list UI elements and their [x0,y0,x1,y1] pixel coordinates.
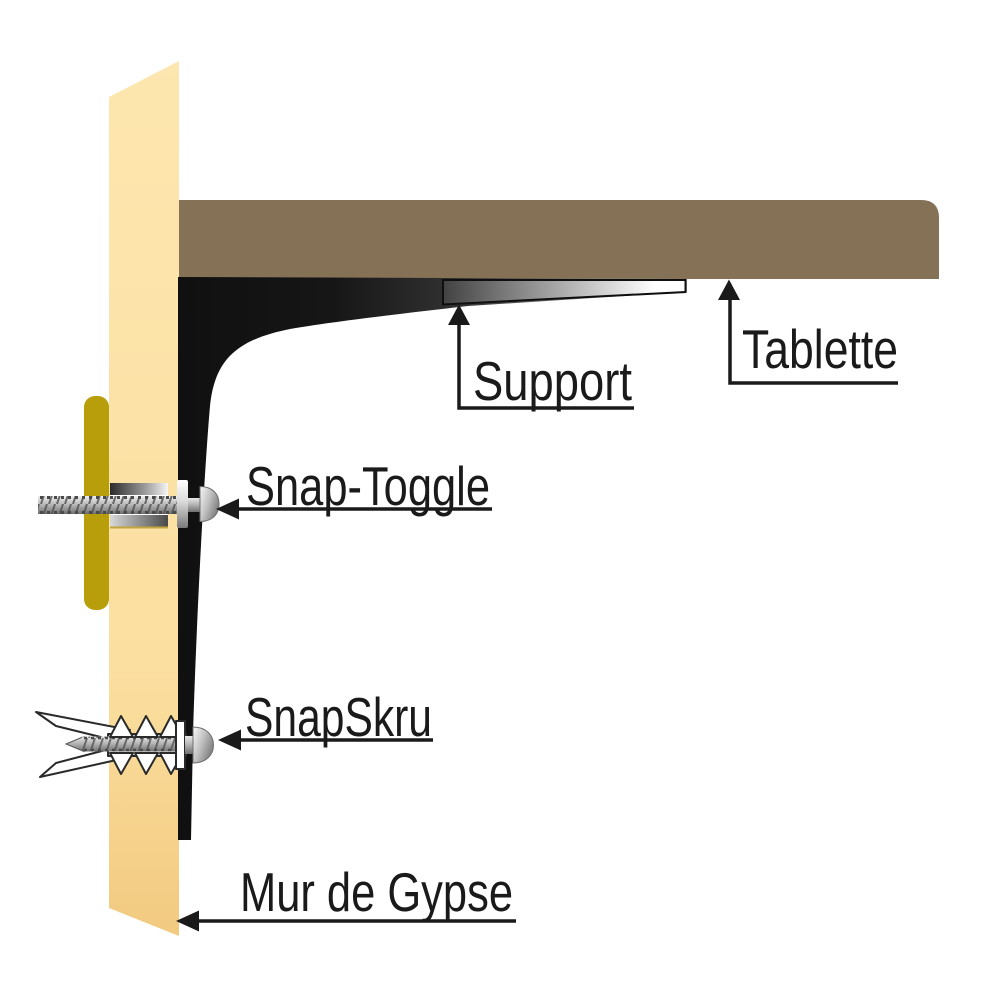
toggle-washer [177,480,188,528]
label-tablette: Tablette [742,318,898,380]
toggle-channel-bottom-flange [110,515,168,527]
rod-threads [38,496,180,514]
toggle-bolt-rod [38,496,180,514]
anchor-screw-collar [185,736,193,754]
label-snapskru: SnapSkru [245,686,432,748]
toggle-channel-top-flange [110,483,168,495]
shelf-board [179,200,939,279]
toggle-channel-edge [110,527,168,529]
label-support: Support [473,350,632,412]
label-mur-de-gypse: Mur de Gypse [240,861,513,923]
installation-diagram: Tablette Support Snap-Toggle SnapSkru Mu… [0,0,1000,1000]
toggle-screw-shank [188,498,200,512]
anchor-screw [66,737,184,752]
label-snap-toggle: Snap-Toggle [246,455,490,517]
anchor-flange [176,721,185,769]
diagram-canvas: Tablette Support Snap-Toggle SnapSkru Mu… [0,0,1000,1000]
